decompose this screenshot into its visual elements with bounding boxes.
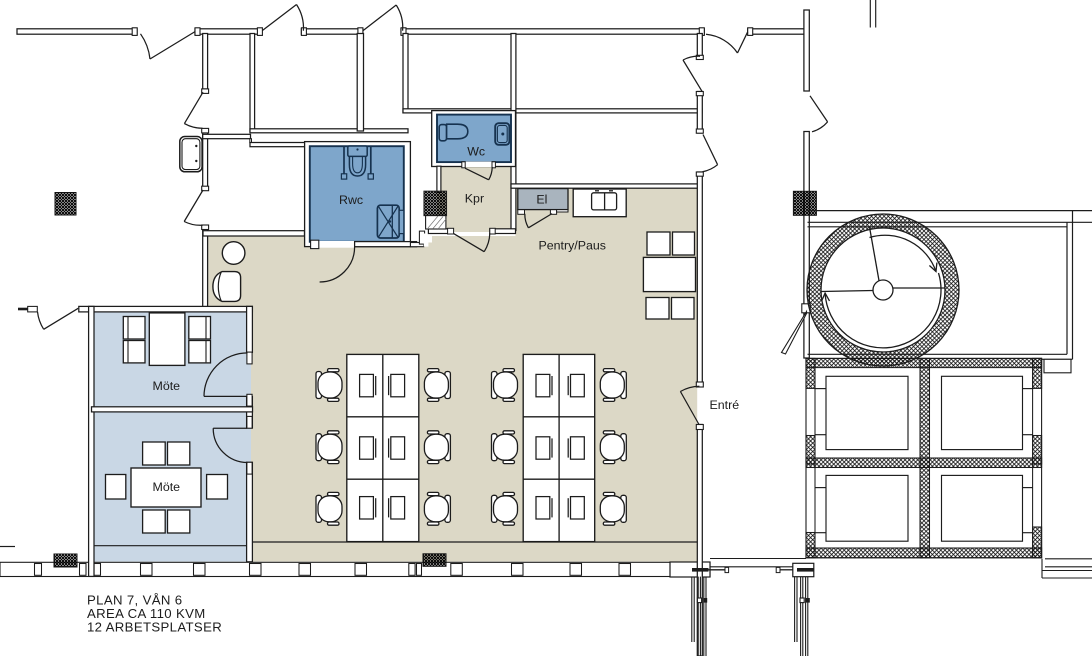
svg-text:12 ARBETSPLATSER: 12 ARBETSPLATSER: [87, 619, 222, 634]
svg-text:Kpr: Kpr: [465, 191, 484, 205]
svg-text:Möte: Möte: [153, 379, 181, 393]
svg-text:Rwc: Rwc: [339, 193, 363, 207]
svg-text:Entré: Entré: [710, 398, 740, 412]
svg-text:Pentry/Paus: Pentry/Paus: [539, 238, 607, 252]
svg-text:El: El: [536, 192, 547, 206]
svg-text:Möte: Möte: [153, 480, 181, 494]
svg-text:Wc: Wc: [467, 144, 485, 158]
